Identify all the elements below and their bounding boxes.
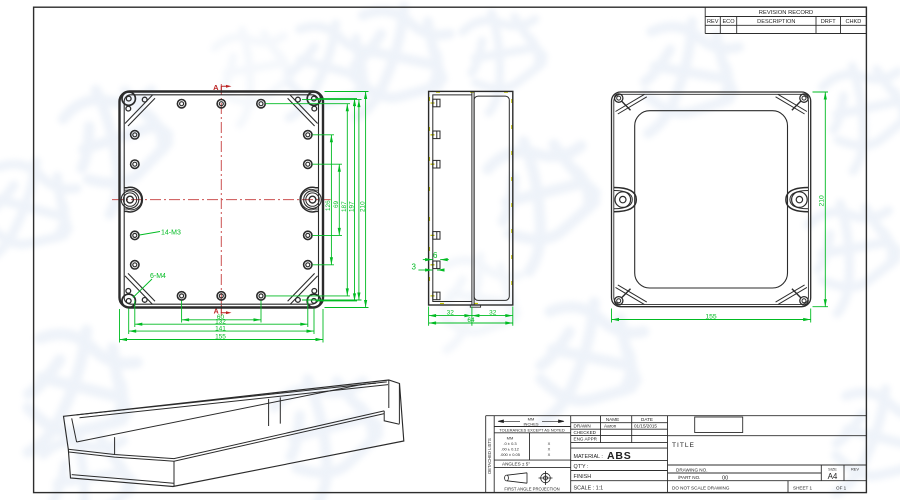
svg-text:SIZE: SIZE bbox=[828, 467, 837, 472]
svg-text:197: 197 bbox=[349, 201, 356, 212]
svg-text:X: X bbox=[548, 441, 551, 446]
svg-text:ECO: ECO bbox=[722, 19, 735, 25]
svg-text:CHKD: CHKD bbox=[845, 19, 861, 25]
svg-text:ABS: ABS bbox=[607, 450, 632, 462]
svg-text:CHECKED: CHECKED bbox=[574, 430, 597, 435]
svg-text:REVISION RECORD: REVISION RECORD bbox=[759, 10, 813, 16]
svg-text:MATERIAL :: MATERIAL : bbox=[574, 454, 603, 460]
svg-text:.0 ± 0.3: .0 ± 0.3 bbox=[503, 441, 517, 446]
svg-text:DRFT: DRFT bbox=[821, 19, 836, 25]
svg-text:Aaron: Aaron bbox=[604, 423, 617, 428]
svg-text:ENG APPR: ENG APPR bbox=[574, 437, 598, 442]
svg-text:NAME: NAME bbox=[606, 417, 619, 422]
svg-text:6: 6 bbox=[433, 251, 438, 260]
svg-text:155: 155 bbox=[705, 313, 717, 320]
svg-text:3: 3 bbox=[412, 263, 417, 272]
svg-text:/PART NO.: /PART NO. bbox=[678, 475, 700, 480]
svg-text:QT'Y :: QT'Y : bbox=[574, 464, 589, 470]
svg-text:SHEET 1: SHEET 1 bbox=[793, 486, 813, 491]
svg-text:01/15/2015: 01/15/2015 bbox=[634, 423, 657, 428]
svg-text:187: 187 bbox=[341, 201, 348, 212]
svg-text:6-M4: 6-M4 bbox=[150, 273, 166, 280]
svg-text:210: 210 bbox=[819, 195, 826, 207]
svg-text:.00 ± 0.12: .00 ± 0.12 bbox=[501, 447, 520, 452]
svg-text:DRAWING NO.: DRAWING NO. bbox=[676, 468, 707, 473]
svg-text:14-M3: 14-M3 bbox=[161, 230, 181, 237]
svg-text:DO NOT SCALE DRAWING: DO NOT SCALE DRAWING bbox=[672, 486, 730, 491]
svg-text:.000 ± 0.05: .000 ± 0.05 bbox=[500, 452, 521, 457]
svg-text:210: 210 bbox=[360, 201, 367, 212]
svg-text:126: 126 bbox=[325, 200, 332, 211]
svg-text:DRAWN: DRAWN bbox=[574, 423, 591, 428]
svg-text:TOLERANCES EXCEPT AS NOTED: TOLERANCES EXCEPT AS NOTED bbox=[499, 428, 565, 433]
svg-text:OF 1: OF 1 bbox=[836, 486, 847, 491]
svg-text:FINISH: FINISH bbox=[574, 474, 592, 480]
svg-text:155: 155 bbox=[215, 334, 226, 341]
svg-text:REV: REV bbox=[707, 19, 719, 25]
svg-text:TITLE: TITLE bbox=[672, 442, 695, 449]
svg-text:DETACHED LISTS: DETACHED LISTS bbox=[487, 438, 492, 474]
svg-text:69: 69 bbox=[333, 200, 340, 208]
svg-text:64: 64 bbox=[467, 317, 475, 324]
svg-text:INCHES: INCHES bbox=[523, 421, 538, 426]
svg-text:00: 00 bbox=[722, 476, 728, 482]
svg-text:DESCRIPTION: DESCRIPTION bbox=[757, 19, 795, 25]
svg-text:141: 141 bbox=[215, 325, 226, 332]
svg-text:FIRST ANGLE PROJECTION: FIRST ANGLE PROJECTION bbox=[504, 486, 559, 491]
svg-text:REV: REV bbox=[851, 467, 859, 472]
svg-text:X: X bbox=[548, 447, 551, 452]
svg-text:MM: MM bbox=[507, 436, 514, 441]
svg-text:SCALE : 1:1: SCALE : 1:1 bbox=[574, 486, 604, 492]
svg-text:X: X bbox=[548, 452, 551, 457]
svg-text:DATE: DATE bbox=[641, 417, 653, 422]
svg-text:32: 32 bbox=[489, 310, 497, 317]
svg-text:ANGLES ± 5°: ANGLES ± 5° bbox=[502, 462, 530, 467]
svg-text:32: 32 bbox=[447, 310, 455, 317]
svg-text:A4: A4 bbox=[828, 472, 838, 481]
